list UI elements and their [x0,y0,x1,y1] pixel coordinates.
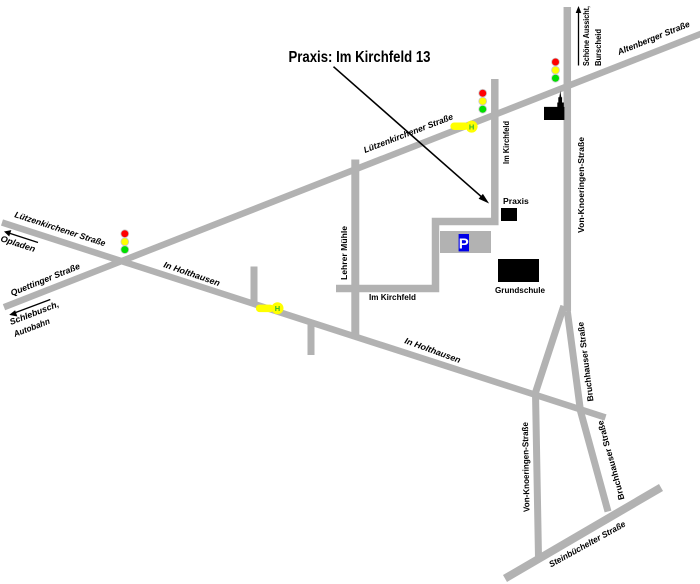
svg-text:Im Kirchfeld: Im Kirchfeld [501,121,511,164]
svg-text:Praxis: Praxis [503,196,529,206]
svg-text:Schöne Aussicht,: Schöne Aussicht, [581,6,591,66]
svg-text:Grundschule: Grundschule [495,285,545,295]
svg-text:Von-Knoeringen-Straße: Von-Knoeringen-Straße [576,137,586,233]
svg-text:P: P [459,236,469,253]
svg-text:H: H [469,122,474,131]
svg-text:Lehrer Mühle: Lehrer Mühle [339,226,349,280]
svg-text:Von-Knoeringen-Straße: Von-Knoeringen-Straße [520,422,532,512]
svg-text:Burscheid: Burscheid [593,29,603,66]
svg-text:H: H [275,304,280,313]
svg-text:Im Kirchfeld: Im Kirchfeld [369,292,416,302]
svg-text:Praxis: Im Kirchfeld 13: Praxis: Im Kirchfeld 13 [289,49,431,66]
